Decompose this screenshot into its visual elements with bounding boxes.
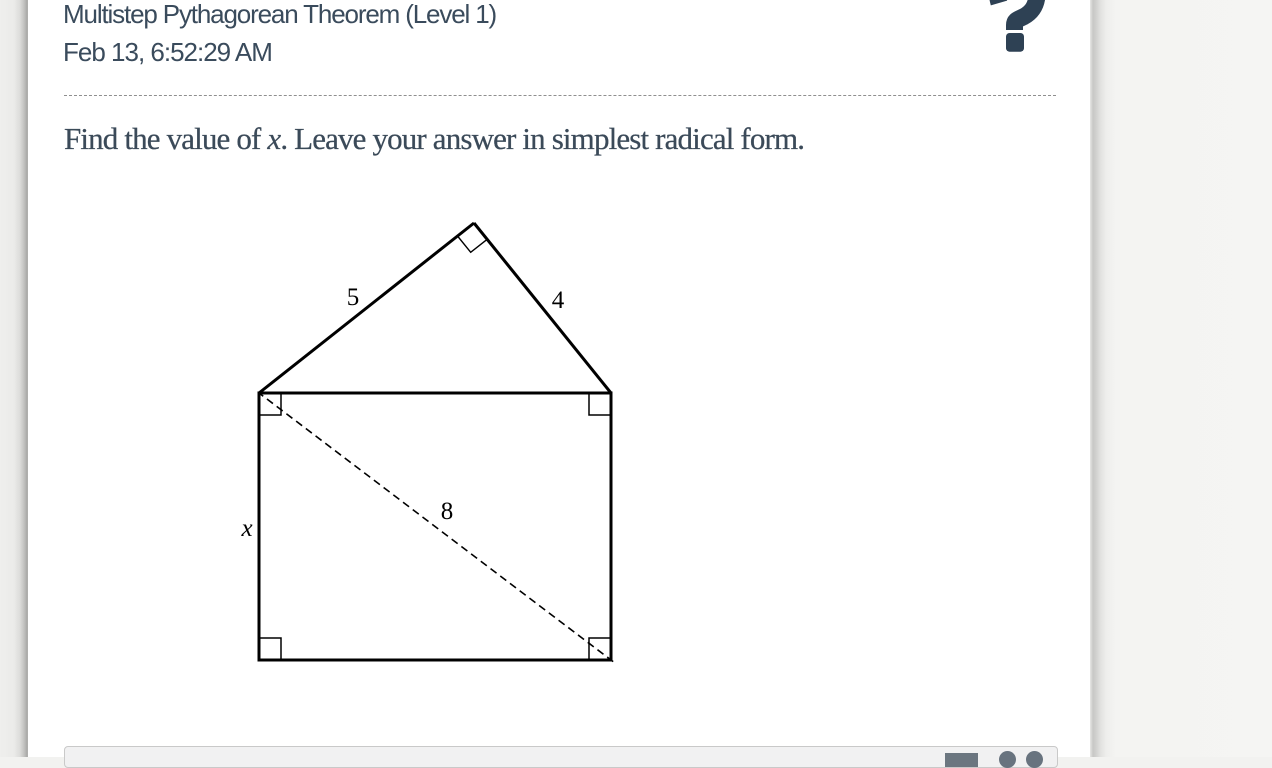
svg-text:8: 8 [441, 498, 454, 525]
svg-text:x: x [240, 515, 252, 542]
svg-text:5: 5 [347, 284, 360, 311]
svg-text:4: 4 [552, 287, 565, 314]
